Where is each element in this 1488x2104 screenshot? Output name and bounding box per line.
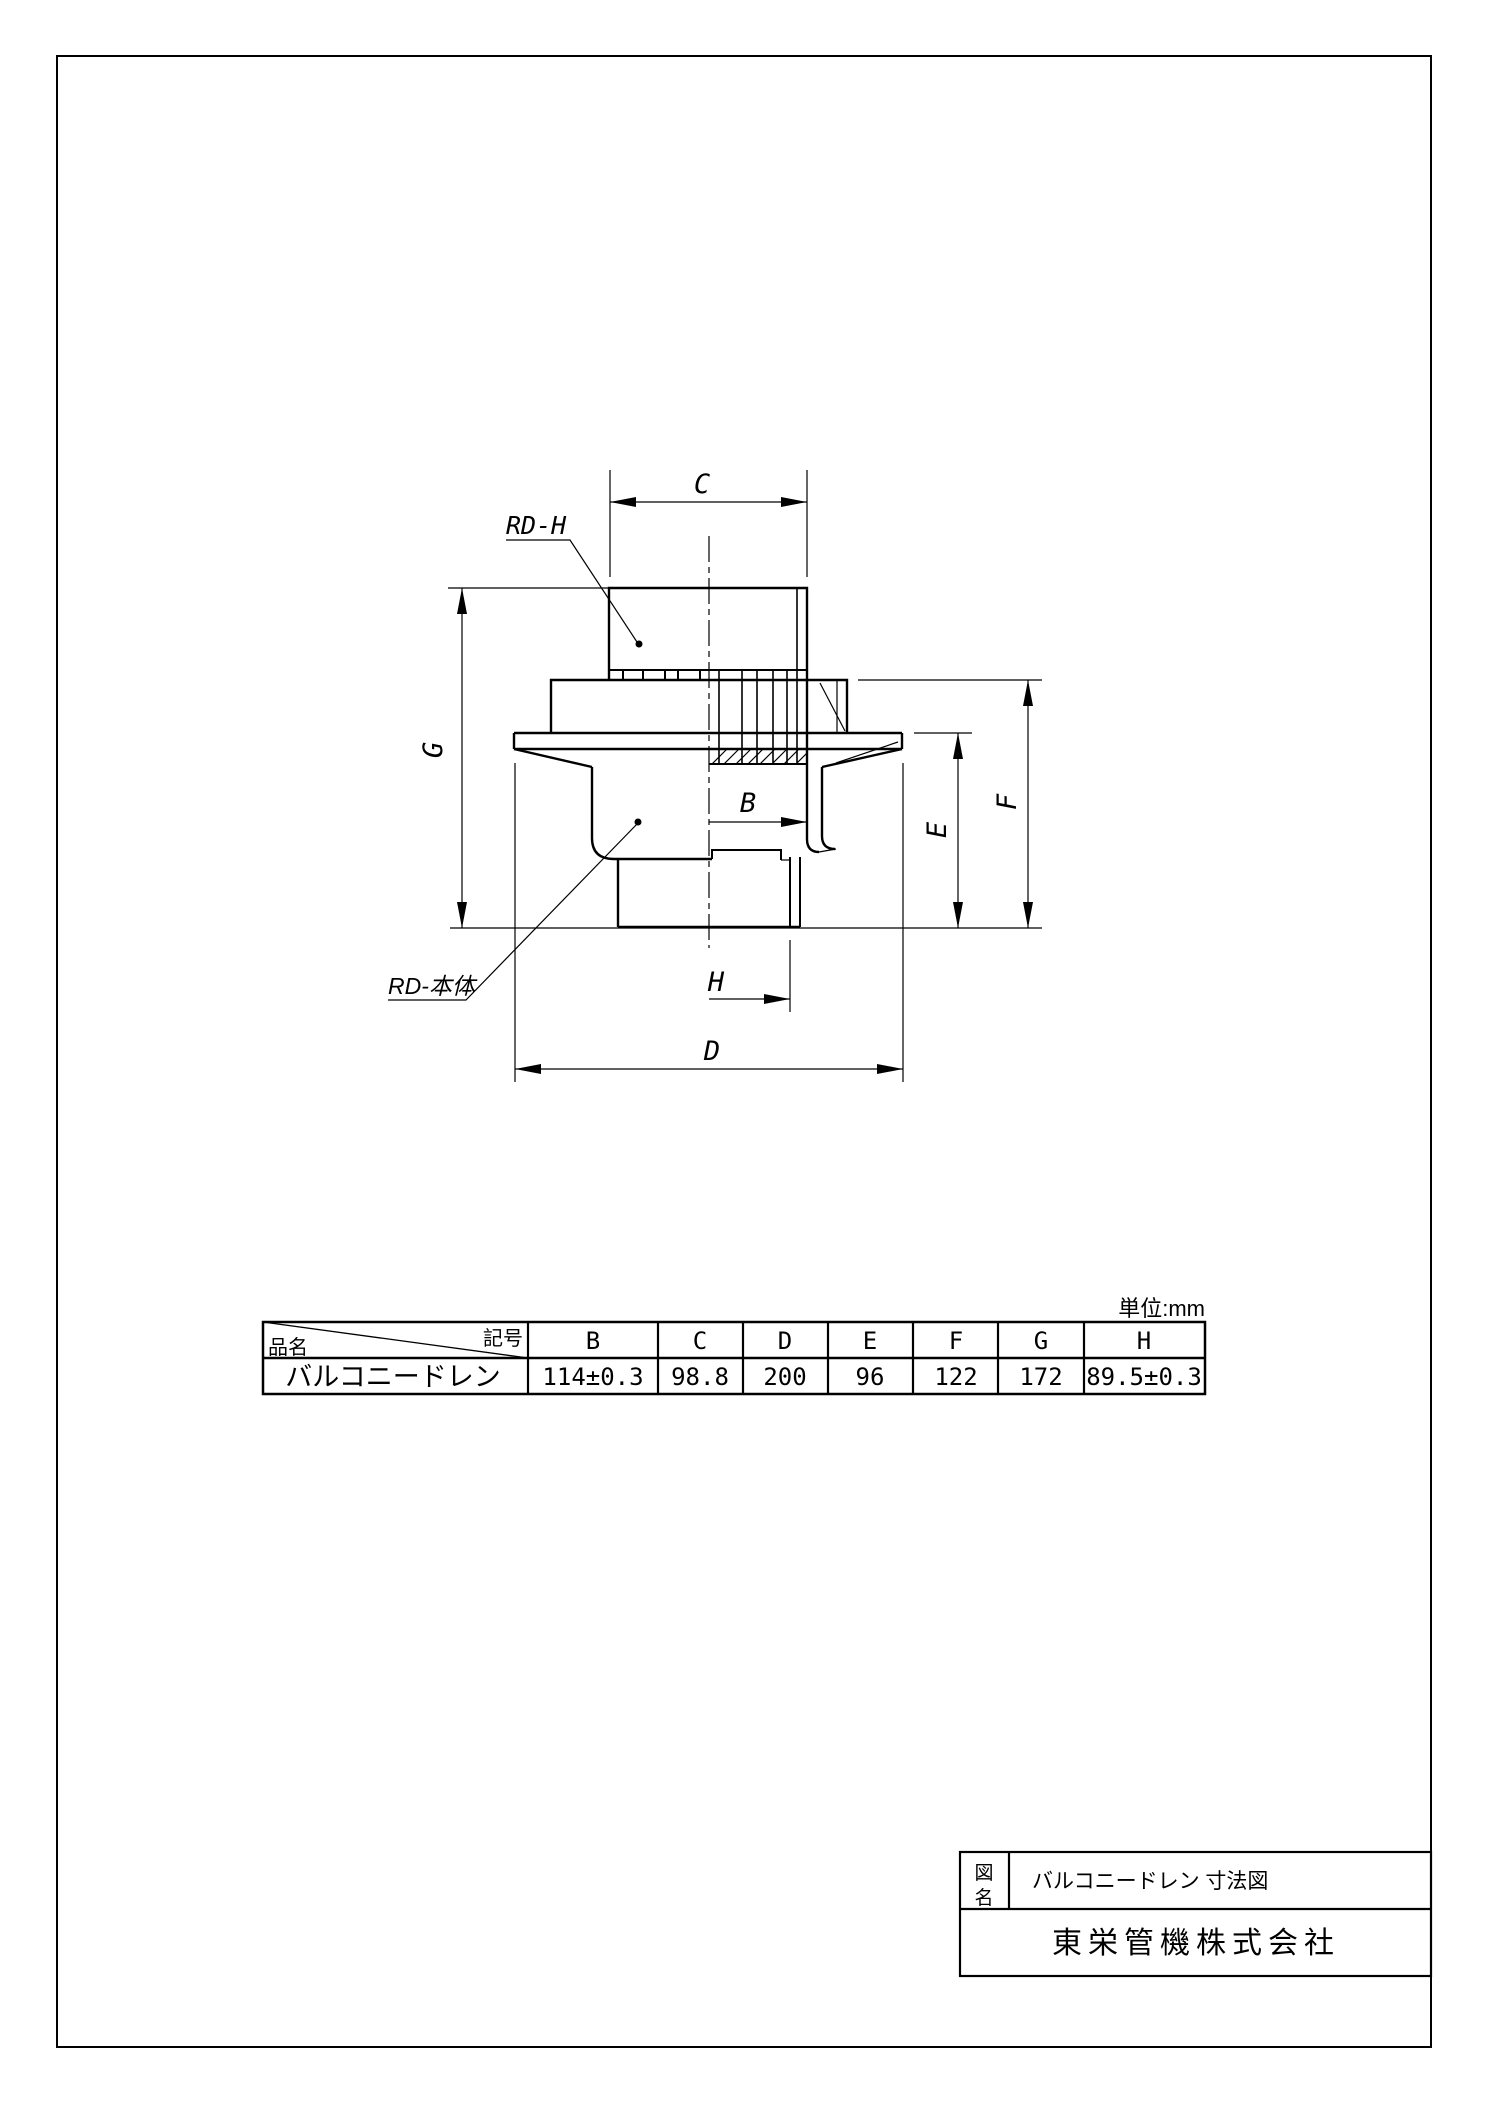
dim-label-g: G [418, 742, 449, 758]
company-name: 東栄管機株式会社 [1052, 1927, 1340, 1960]
leader-rd-h: RD-H [506, 511, 643, 648]
dim-label-c: C [694, 469, 710, 500]
dimension-B: B [709, 788, 807, 827]
dim-label-d: D [703, 1036, 720, 1067]
col-header: H [1137, 1327, 1151, 1355]
dim-label-f: F [992, 793, 1023, 810]
field-label-zu: 図 [974, 1863, 993, 1884]
leader-dot [636, 641, 643, 648]
leader-label-rd-body: RD-本体 [388, 973, 478, 999]
dimension-E: E [914, 733, 972, 928]
value-d: 200 [763, 1363, 806, 1391]
value-b: 114±0.3 [542, 1363, 643, 1391]
value-e: 96 [856, 1363, 885, 1391]
title-block: 図 名 バルコニードレン 寸法図 東栄管機株式会社 [960, 1852, 1431, 1976]
dim-label-e: E [922, 821, 953, 838]
dimension-G: G [418, 588, 608, 928]
spec-table: 品名 記号 B C D E F G H バルコニードレン 114±0.3 98.… [263, 1322, 1205, 1394]
col-header: B [586, 1327, 600, 1355]
dim-label-h: H [707, 967, 725, 998]
funnel-spout [807, 764, 836, 852]
lower-body-outline [592, 767, 790, 860]
dimension-F: F [858, 680, 1042, 928]
page-border [57, 56, 1431, 2047]
col-header: D [778, 1327, 792, 1355]
col-header: F [949, 1327, 963, 1355]
product-name: バルコニードレン [285, 1362, 500, 1392]
value-h: 89.5±0.3 [1086, 1363, 1202, 1391]
table-column-headers: B C D E F G H [586, 1327, 1151, 1355]
table-header-symbol: 記号 [483, 1327, 523, 1350]
table-header-name: 品名 [268, 1336, 308, 1359]
value-g: 172 [1019, 1363, 1062, 1391]
flange-outline [514, 733, 902, 767]
unit-note: 単位:mm [1118, 1296, 1205, 1321]
dim-label-b: B [740, 788, 756, 819]
leader-label-rd-h: RD-H [506, 511, 567, 540]
field-label-mei: 名 [974, 1887, 993, 1909]
dimension-H: H [707, 940, 790, 1012]
value-c: 98.8 [671, 1363, 729, 1391]
col-header: E [863, 1327, 877, 1355]
value-f: 122 [934, 1363, 977, 1391]
drain-section-view: C G B E F H [388, 469, 1042, 1082]
drawing-sheet: C G B E F H [0, 0, 1488, 2104]
leader-dot [635, 819, 642, 826]
col-header: G [1034, 1327, 1048, 1355]
upper-body-outline [551, 680, 847, 733]
drawing-title: バルコニードレン 寸法図 [1032, 1870, 1268, 1893]
strainer-cap-outline [609, 588, 807, 764]
hatching [712, 749, 807, 764]
col-header: C [693, 1327, 707, 1355]
